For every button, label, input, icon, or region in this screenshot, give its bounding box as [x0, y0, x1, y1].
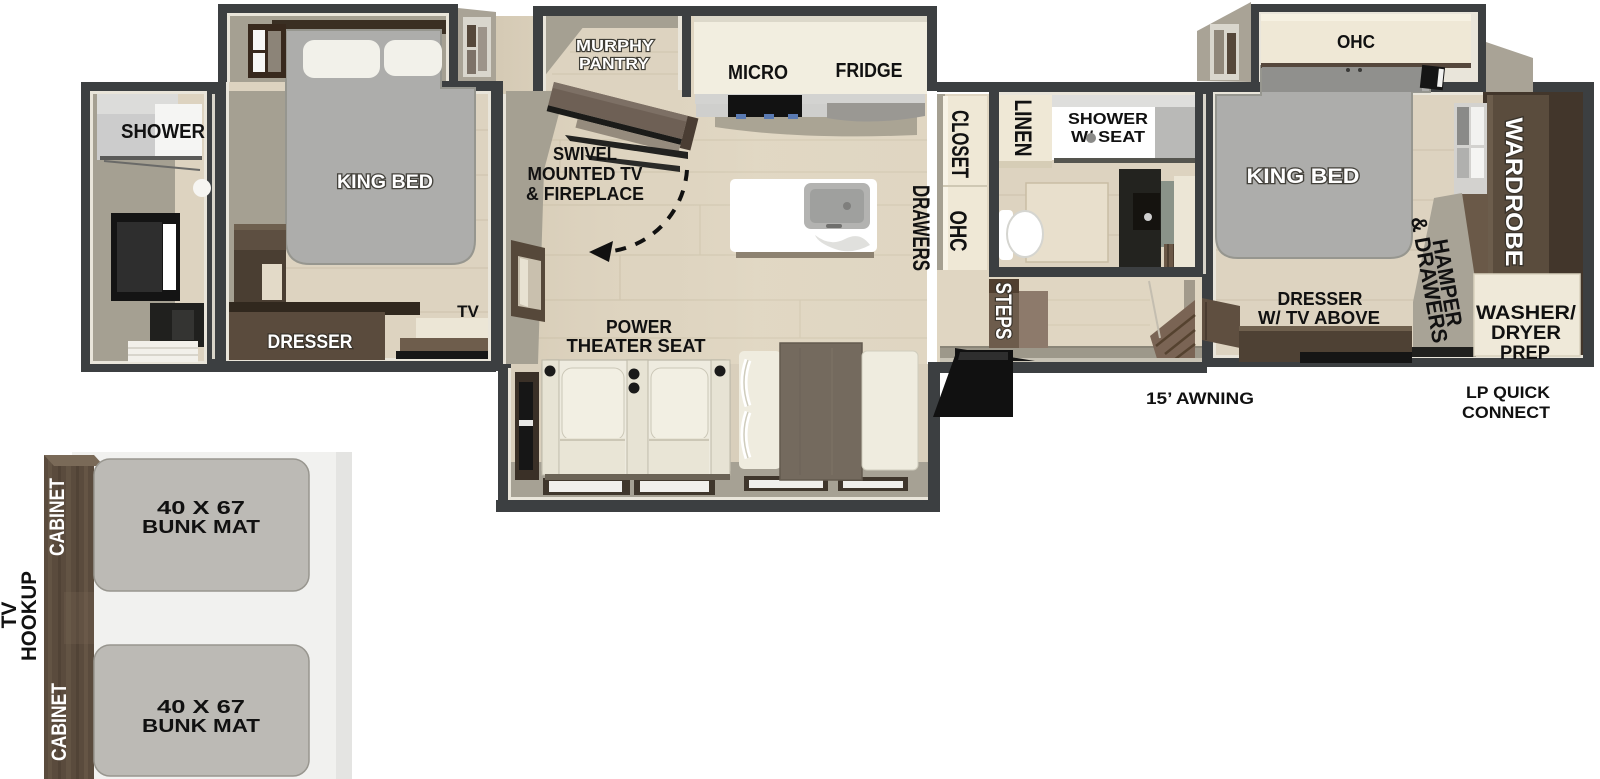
- svg-text:40 X 67: 40 X 67: [157, 498, 245, 518]
- svg-text:MICRO: MICRO: [728, 62, 788, 84]
- svg-text:LP QUICK: LP QUICK: [1466, 383, 1551, 402]
- svg-text:W/ TV ABOVE: W/ TV ABOVE: [1258, 308, 1380, 328]
- svg-text:LINEN: LINEN: [1009, 100, 1036, 157]
- svg-text:PREP: PREP: [1500, 343, 1550, 364]
- svg-text:WASHER/: WASHER/: [1476, 303, 1577, 324]
- svg-text:& FIREPLACE: & FIREPLACE: [526, 184, 644, 204]
- svg-text:KING BED: KING BED: [337, 172, 433, 193]
- svg-text:PANTRY: PANTRY: [579, 56, 649, 73]
- svg-text:FRIDGE: FRIDGE: [836, 60, 903, 82]
- svg-text:SWIVEL: SWIVEL: [553, 144, 617, 164]
- svg-text:MURPHY: MURPHY: [576, 38, 654, 55]
- svg-text:BUNK MAT: BUNK MAT: [142, 716, 260, 736]
- svg-text:THEATER SEAT: THEATER SEAT: [567, 336, 706, 356]
- svg-text:TV: TV: [457, 302, 479, 321]
- svg-text:CABINET: CABINET: [48, 683, 71, 761]
- svg-text:HOOKUP: HOOKUP: [18, 571, 41, 661]
- svg-text:SHOWER: SHOWER: [1068, 111, 1148, 128]
- svg-text:CONNECT: CONNECT: [1462, 403, 1551, 422]
- svg-text:CLOSET: CLOSET: [946, 110, 973, 178]
- svg-text:SHOWER: SHOWER: [121, 121, 206, 143]
- svg-text:POWER: POWER: [606, 317, 672, 337]
- svg-text:DRESSER: DRESSER: [268, 332, 353, 353]
- svg-text:STEPS: STEPS: [991, 283, 1016, 340]
- svg-text:MOUNTED TV: MOUNTED TV: [528, 164, 643, 184]
- svg-text:DRESSER: DRESSER: [1278, 289, 1363, 309]
- svg-text:OHC: OHC: [944, 211, 971, 252]
- svg-text:BUNK MAT: BUNK MAT: [142, 517, 260, 537]
- svg-text:15’ AWNING: 15’ AWNING: [1146, 389, 1254, 408]
- svg-text:W/ SEAT: W/ SEAT: [1071, 129, 1145, 146]
- svg-text:OHC: OHC: [1337, 32, 1375, 52]
- svg-text:40 X 67: 40 X 67: [157, 697, 245, 717]
- svg-text:CABINET: CABINET: [46, 478, 69, 556]
- svg-text:DRYER: DRYER: [1491, 323, 1561, 344]
- svg-text:WARDROBE: WARDROBE: [1500, 118, 1527, 267]
- svg-text:DRAWERS: DRAWERS: [907, 185, 934, 271]
- svg-text:KING BED: KING BED: [1247, 165, 1360, 188]
